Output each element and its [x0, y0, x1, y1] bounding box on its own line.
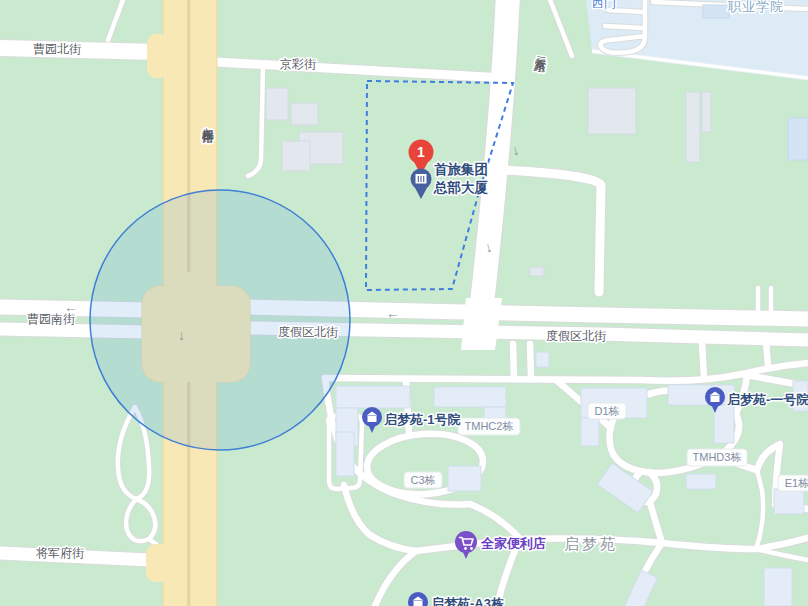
- map-canvas[interactable]: ← ↓ ← ↓ ↓ 曹园北街 京彩街 九棵树中路 云景东路 曹园南街 度假区北街…: [0, 0, 808, 606]
- poi-label-qimengyuan-a3[interactable]: 启梦苑-A3栋: [430, 596, 504, 606]
- poi-label-qimengyuan-yard1-alt[interactable]: 启梦苑-一号院: [726, 392, 808, 407]
- street-label-jiangjunfu: 将军府街: [36, 546, 84, 560]
- badge-tmhc2[interactable]: TMHC2栋: [458, 418, 520, 435]
- street-label-jingcai: 京彩街: [280, 57, 316, 71]
- street-label-dujiaqu-north-1: 度假区北街: [278, 325, 338, 339]
- area-label-west-gate: 西门: [592, 0, 616, 10]
- one-way-arrow-down-icon: ↓: [178, 327, 185, 343]
- poi-label-shoulv-line1[interactable]: 首旅集团: [434, 162, 488, 177]
- badge-tmhd3[interactable]: TMHD3栋: [687, 449, 747, 466]
- poi-label-qimengyuan-yard1[interactable]: 启梦苑-1号院: [383, 412, 461, 427]
- building-icon: [416, 174, 427, 184]
- street-label-dujiaqu-north-2: 度假区北街: [546, 329, 606, 343]
- marker-rank-number: 1: [417, 144, 425, 160]
- svg-text:E1栋: E1栋: [785, 477, 808, 489]
- one-way-arrow-left-icon: ←: [386, 305, 400, 321]
- poi-label-shoulv-line2[interactable]: 总部大厦: [433, 180, 489, 195]
- svg-text:D1栋: D1栋: [594, 405, 619, 417]
- map-viewport[interactable]: ← ↓ ← ↓ ↓ 曹园北街 京彩街 九棵树中路 云景东路 曹园南街 度假区北街…: [0, 0, 808, 606]
- badge-c3[interactable]: C3栋: [404, 472, 442, 488]
- svg-text:C3栋: C3栋: [410, 474, 435, 486]
- badge-e1[interactable]: E1栋: [778, 475, 808, 491]
- street-label-caoyuan-north: 曹园北街: [33, 42, 81, 56]
- area-label-qimengyuan: 启梦苑: [564, 535, 618, 552]
- area-label-vocational-college: 职业学院: [727, 0, 784, 14]
- svg-text:TMHD3栋: TMHD3栋: [693, 451, 742, 463]
- street-label-caoyuan-south: 曹园南街: [27, 312, 75, 326]
- svg-text:TMHC2栋: TMHC2栋: [465, 420, 514, 432]
- selection-radius-circle: [90, 190, 350, 450]
- badge-d1[interactable]: D1栋: [588, 403, 626, 419]
- poi-label-familymart[interactable]: 全家便利店: [480, 536, 546, 551]
